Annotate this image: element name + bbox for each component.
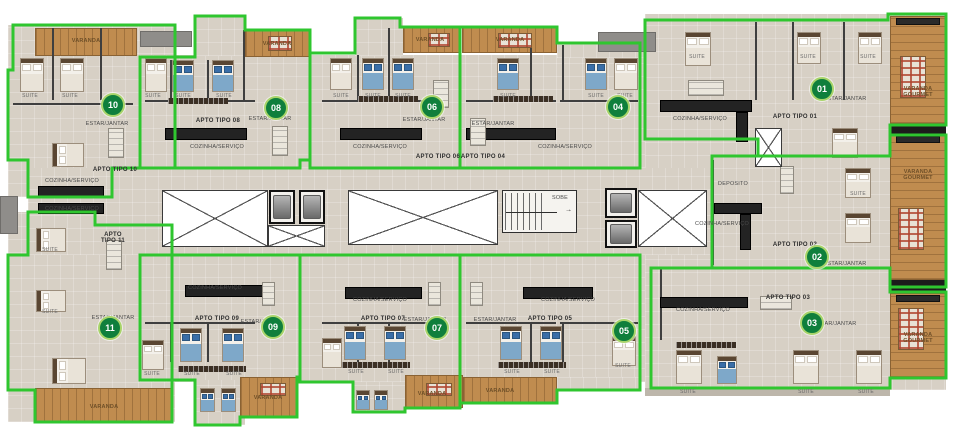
floor-plan: → ESTAR/JANTARESTAR/JANTARESTAR/JANTARES… (0, 0, 953, 433)
unit-badge-07: 07 (425, 316, 449, 340)
unit-badge-09: 09 (261, 315, 285, 339)
unit-badge-03: 03 (800, 311, 824, 335)
unit-badge-01: 01 (810, 77, 834, 101)
unit-badge-05: 05 (612, 319, 636, 343)
unit-badge-06: 06 (420, 95, 444, 119)
unit-badge-11: 11 (98, 316, 122, 340)
unit-badge-04: 04 (606, 95, 630, 119)
unit-badge-08: 08 (264, 96, 288, 120)
unit-badge-02: 02 (805, 245, 829, 269)
unit-badge-10: 10 (101, 93, 125, 117)
badge-layer: 0102030405060708091011 (0, 0, 953, 433)
